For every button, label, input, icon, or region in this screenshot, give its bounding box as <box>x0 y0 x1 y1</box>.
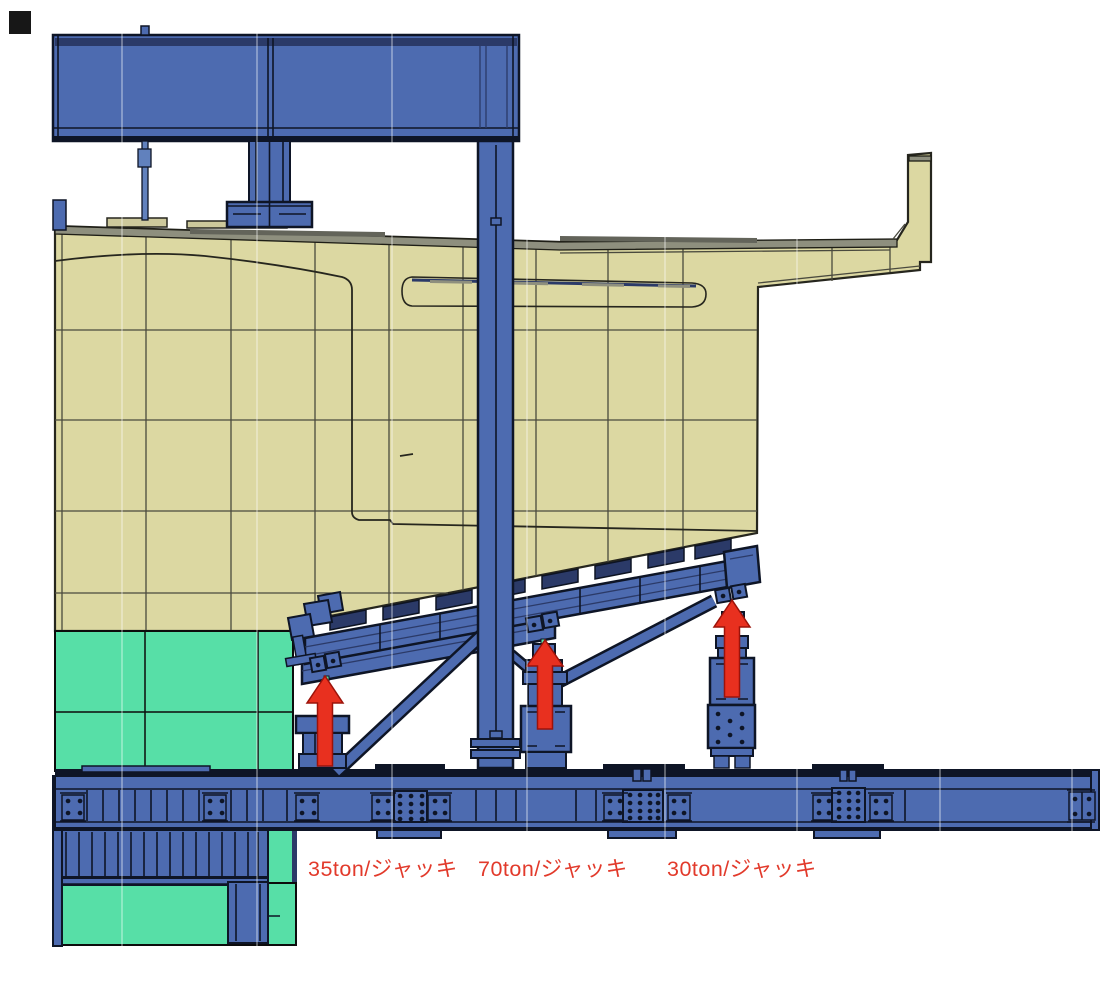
platform-joint-mark-b2 <box>643 769 651 781</box>
platform-joint-mark-c2 <box>849 770 856 781</box>
platform-pedestal-b <box>608 830 676 838</box>
column-rod-collar <box>491 218 501 225</box>
girder-top-tab <box>141 26 149 35</box>
platform-top-plate-left <box>82 766 210 772</box>
jack-labels: 35ton/ジャッキ 70ton/ジャッキ 30ton/ジャッキ <box>308 857 817 881</box>
jack-label-30t: 30ton/ジャッキ <box>667 857 817 881</box>
deep-beam-support-column <box>228 882 268 943</box>
platform-end-bolt-group <box>1067 790 1095 822</box>
platform-pedestal-c <box>814 830 880 838</box>
cad-drawing-canvas: 35ton/ジャッキ 70ton/ジャッキ 30ton/ジャッキ <box>0 0 1120 982</box>
jack-label-70t: 70ton/ジャッキ <box>478 857 628 881</box>
survey-rod <box>138 141 151 220</box>
column-base-plate-2 <box>471 750 520 758</box>
fin-top-cap <box>909 156 931 161</box>
column-rod-foot <box>490 731 502 738</box>
jacking-arrangement-drawing: 35ton/ジャッキ 70ton/ジャッキ 30ton/ジャッキ <box>0 0 1120 982</box>
deep-beam-bottom-flange <box>55 876 268 879</box>
deck-corner-fitting <box>53 200 66 230</box>
platform-pedestal-a <box>377 830 441 838</box>
platform-joint-mark-b1 <box>633 769 641 781</box>
jack-label-35t: 35ton/ジャッキ <box>308 857 458 881</box>
platform-top-band <box>55 769 1098 776</box>
corner-mark <box>9 11 31 34</box>
rod-collar <box>138 149 151 167</box>
girder-body <box>53 35 519 141</box>
gantry-girder <box>53 26 519 141</box>
cradle-right-end-block <box>724 546 760 588</box>
platform-joint-mark-c1 <box>840 770 847 781</box>
girder-pedestal <box>227 141 312 227</box>
main-column <box>471 141 520 768</box>
deck-pad-1 <box>107 218 167 227</box>
platform-bottom-band <box>55 827 1098 830</box>
column-base-plate-1 <box>471 739 520 747</box>
girder-top-stripe <box>55 38 517 46</box>
